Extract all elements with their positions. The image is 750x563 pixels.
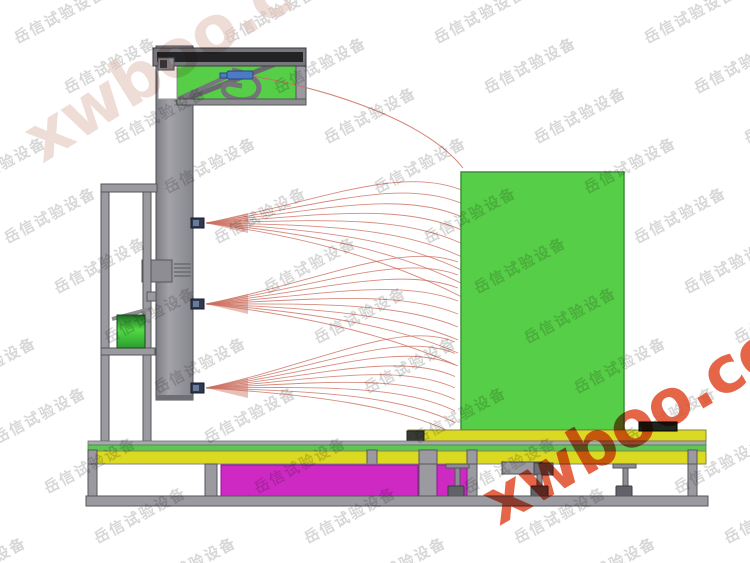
frame-left-post [101, 184, 109, 441]
machine-diagram [0, 0, 750, 563]
pallet-end-cap [407, 431, 424, 441]
frame-mid-beam [101, 348, 155, 355]
spray-fans [206, 182, 464, 434]
tank-body [117, 315, 145, 348]
deck-green-strip [88, 445, 706, 451]
spray-fan-2 [206, 256, 458, 366]
frame-tab [147, 292, 156, 301]
tower-column-base [156, 395, 193, 400]
dark-slab [639, 422, 677, 431]
spray-nozzle-1-band [193, 220, 199, 226]
platform [86, 422, 708, 506]
test-specimen-box [461, 172, 624, 430]
bottom-rail [86, 496, 708, 506]
tower-top-panel [158, 66, 177, 99]
specimen-pallet [408, 430, 706, 441]
deck-yellow-strip [88, 451, 706, 464]
carriage-detail [160, 60, 167, 68]
top-beam-rail [157, 52, 303, 62]
tower-side-frame [101, 184, 157, 441]
arm-bottom-ledge [177, 99, 306, 105]
top-arm [153, 48, 306, 105]
spray-fan-3 [206, 336, 455, 434]
spray-nozzle-3-band [193, 385, 199, 391]
spray-nozzle-2-band [193, 301, 199, 307]
arm-end-cap [296, 62, 306, 104]
overhead-nozzle [227, 71, 253, 79]
spray-test-equipment-diagram: 岳信试验设备岳信试验设备岳信试验设备岳信试验设备岳信试验设备岳信试验设备岳信试验… [0, 0, 750, 563]
water-tank [112, 309, 150, 348]
deck-top-edge [88, 441, 706, 445]
magenta-tank-1 [221, 465, 418, 496]
frame-top-beam [101, 184, 157, 192]
mechanism-motor [534, 463, 553, 475]
